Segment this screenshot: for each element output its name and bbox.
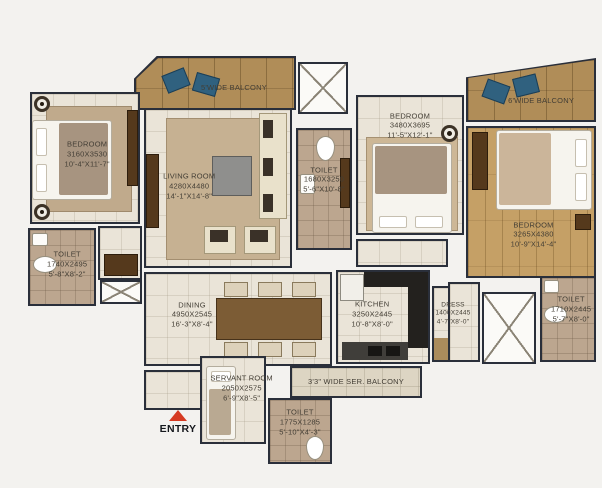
room-dims-ft: 5'-6"X10'-8": [303, 184, 344, 194]
room-name: TOILET: [279, 408, 320, 418]
duct-shaft-top: [298, 62, 348, 114]
balcony-right-label: 6'WIDE BALCONY: [508, 96, 574, 106]
dress-label: DRESS 1400X2445 4'-7"X8'-0": [435, 301, 470, 326]
sink-basin: [386, 346, 400, 356]
kitchen-counter-sink: [342, 342, 408, 360]
room-name: LIVING ROOM: [163, 172, 215, 182]
room-dims-ft: 4'-7"X8'-0": [435, 318, 470, 326]
kitchen-label: KITCHEN 3250X2445 10'-8"X8'-0": [351, 300, 392, 329]
pillow: [575, 173, 587, 201]
room-bedroom-top-left: BEDROOM 3160X3530 10'-4"X11'-7": [30, 92, 140, 224]
room-name: 5'WIDE BALCONY: [201, 83, 267, 93]
sink: [544, 280, 559, 293]
balcony-top: 5'WIDE BALCONY: [134, 56, 296, 110]
room-name: DRESS: [435, 301, 470, 309]
side-table: [441, 125, 458, 142]
balcony-right: 6'WIDE BALCONY: [466, 58, 596, 122]
room-dims-mm: 1740X2495: [47, 259, 87, 269]
room-dims-ft: 5'-8"X8'-2": [47, 269, 87, 279]
nightstand: [34, 204, 50, 220]
dining-chair: [224, 282, 248, 297]
room-servant: SERVANT ROOM 2050X2575 6'-9"X8'-5": [200, 356, 266, 444]
foyer: [144, 370, 202, 410]
bedroom-center-label: BEDROOM 3480X3695 11'-5"X12'-1": [387, 111, 432, 140]
passage-left: [98, 226, 142, 280]
room-name: TOILET: [47, 249, 87, 259]
dining-chair: [224, 342, 248, 357]
room-dining: DINING 4950X2545 16'-3"X8'-4": [144, 272, 332, 366]
cabinet: [104, 254, 138, 276]
room-service-balcony: 3'3" WIDE SER. BALCONY: [290, 366, 422, 398]
coffee-table: [212, 156, 252, 196]
toilet-right-label: TOILET 1710X2445 5'-7"X8'-0": [551, 295, 591, 324]
service-balcony-label: 3'3" WIDE SER. BALCONY: [308, 377, 404, 387]
room-name: DINING: [171, 300, 212, 310]
toilet-bottom-label: TOILET 1775X1285 5'-10"X4'-3": [279, 408, 320, 437]
bedroom-top-left-label: BEDROOM 3160X3530 10'-4"X11'-7": [64, 140, 109, 169]
toilet-left-label: TOILET 1740X2495 5'-8"X8'-2": [47, 249, 87, 278]
room-name: 3'3" WIDE SER. BALCONY: [308, 377, 404, 387]
fridge: [340, 274, 364, 301]
entry-arrow-icon: [169, 410, 187, 421]
pillow: [415, 216, 443, 228]
living-room-label: LIVING ROOM 4280X4480 14'-1"X14'-8": [163, 172, 215, 201]
room-dims-mm: 3265X4380: [511, 230, 557, 240]
room-bedroom-master: BEDROOM 3265X4380 10'-9"X14'-4": [466, 126, 596, 278]
room-dims-mm: 1775X1285: [279, 417, 320, 427]
balcony-right-floor: 6'WIDE BALCONY: [468, 60, 594, 120]
room-name: BEDROOM: [387, 111, 432, 121]
room-toilet-right: TOILET 1710X2445 5'-7"X8'-0": [540, 276, 596, 362]
armchair: [204, 226, 236, 254]
armchair-cushion: [250, 230, 268, 242]
room-dims-ft: 5'-7"X8'-0": [551, 314, 591, 324]
room-dims-ft: 5'-10"X4'-3": [279, 427, 320, 437]
armchair-cushion: [210, 230, 228, 242]
servant-room-label: SERVANT ROOM 2050X2575 6'-9"X8'-5": [210, 374, 272, 403]
dining-table: [216, 298, 322, 340]
sink-basin: [368, 346, 382, 356]
room-kitchen: KITCHEN 3250X2445 10'-8"X8'-0": [336, 270, 430, 364]
room-name: 6'WIDE BALCONY: [508, 96, 574, 106]
room-dims-mm: 1710X2445: [551, 304, 591, 314]
sofa-cushion: [263, 120, 273, 138]
room-name: TOILET: [551, 295, 591, 305]
bed: [372, 143, 452, 233]
room-dims-ft: 11'-5"X12'-1": [387, 130, 432, 140]
entry-marker: ENTRY: [156, 410, 200, 435]
room-dims-ft: 10'-9"X14'-4": [511, 239, 557, 249]
room-living: LIVING ROOM 4280X4480 14'-1"X14'-8": [144, 108, 292, 268]
room-name: SERVANT ROOM: [210, 374, 272, 384]
room-name: BEDROOM: [511, 220, 557, 230]
room-bedroom-center: BEDROOM 3480X3695 11'-5"X12'-1": [356, 95, 464, 235]
side-table: [575, 214, 591, 230]
room-dims-ft: 10'-4"X11'-7": [64, 159, 109, 169]
room-dims-mm: 3160X3530: [64, 149, 109, 159]
dining-chair: [258, 342, 282, 357]
room-name: KITCHEN: [351, 300, 392, 310]
room-toilet-center: TOILET 1680X3250 5'-6"X10'-8": [296, 128, 352, 250]
lounge-chair: [481, 78, 510, 104]
lounge-chair: [512, 73, 540, 97]
room-dims-mm: 2050X2575: [210, 383, 272, 393]
entry-label: ENTRY: [160, 423, 197, 435]
sofa-cushion: [263, 194, 273, 212]
room-dims-ft: 16'-3"X8'-4": [171, 319, 212, 329]
dining-chair: [292, 342, 316, 357]
room-dims-ft: 14'-1"X14'-8": [163, 191, 215, 201]
floor-plan-page: { "plan": { "entry_label": "ENTRY", "roo…: [0, 0, 602, 488]
bed: [496, 130, 592, 210]
pillow: [36, 128, 47, 156]
pillow: [36, 164, 47, 192]
balcony-top-label: 5'WIDE BALCONY: [201, 83, 267, 93]
room-dims-mm: 3250X2445: [351, 309, 392, 319]
wc: [316, 136, 335, 161]
blanket: [375, 146, 447, 194]
bedroom-master-label: BEDROOM 3265X4380 10'-9"X14'-4": [511, 220, 557, 249]
room-dims-mm: 1400X2445: [435, 310, 470, 318]
wardrobe: [472, 132, 488, 190]
dining-chair: [258, 282, 282, 297]
dining-chair: [292, 282, 316, 297]
wc: [306, 436, 324, 460]
room-dims-mm: 4950X2545: [171, 310, 212, 320]
kitchen-counter: [408, 272, 428, 348]
room-dims-mm: 3480X3695: [387, 121, 432, 131]
corridor: [356, 239, 448, 267]
room-toilet-bottom: TOILET 1775X1285 5'-10"X4'-3": [268, 398, 332, 464]
pillow: [575, 139, 587, 167]
room-dims-mm: 4280X4480: [163, 182, 215, 192]
duct-shaft-right: [482, 292, 536, 364]
toilet-center-label: TOILET 1680X3250 5'-6"X10'-8": [303, 165, 344, 194]
room-dims-mm: 1680X3250: [303, 175, 344, 185]
pillow: [379, 216, 407, 228]
room-name: BEDROOM: [64, 140, 109, 150]
sofa-cushion: [263, 158, 273, 176]
lounge-chair: [161, 67, 190, 94]
tv-unit: [146, 154, 159, 228]
room-toilet-left: TOILET 1740X2495 5'-8"X8'-2": [28, 228, 96, 306]
room-dims-ft: 6'-9"X8'-5": [210, 393, 272, 403]
room-dims-ft: 10'-8"X8'-0": [351, 319, 392, 329]
room-name: TOILET: [303, 165, 344, 175]
wardrobe: [127, 110, 138, 186]
balcony-top-floor: 5'WIDE BALCONY: [136, 58, 294, 108]
sofa: [259, 113, 287, 219]
duct-shaft-left: [100, 280, 142, 304]
dining-label: DINING 4950X2545 16'-3"X8'-4": [171, 300, 212, 329]
blanket: [499, 133, 551, 205]
armchair: [244, 226, 276, 254]
sink: [32, 233, 48, 246]
nightstand: [34, 96, 50, 112]
